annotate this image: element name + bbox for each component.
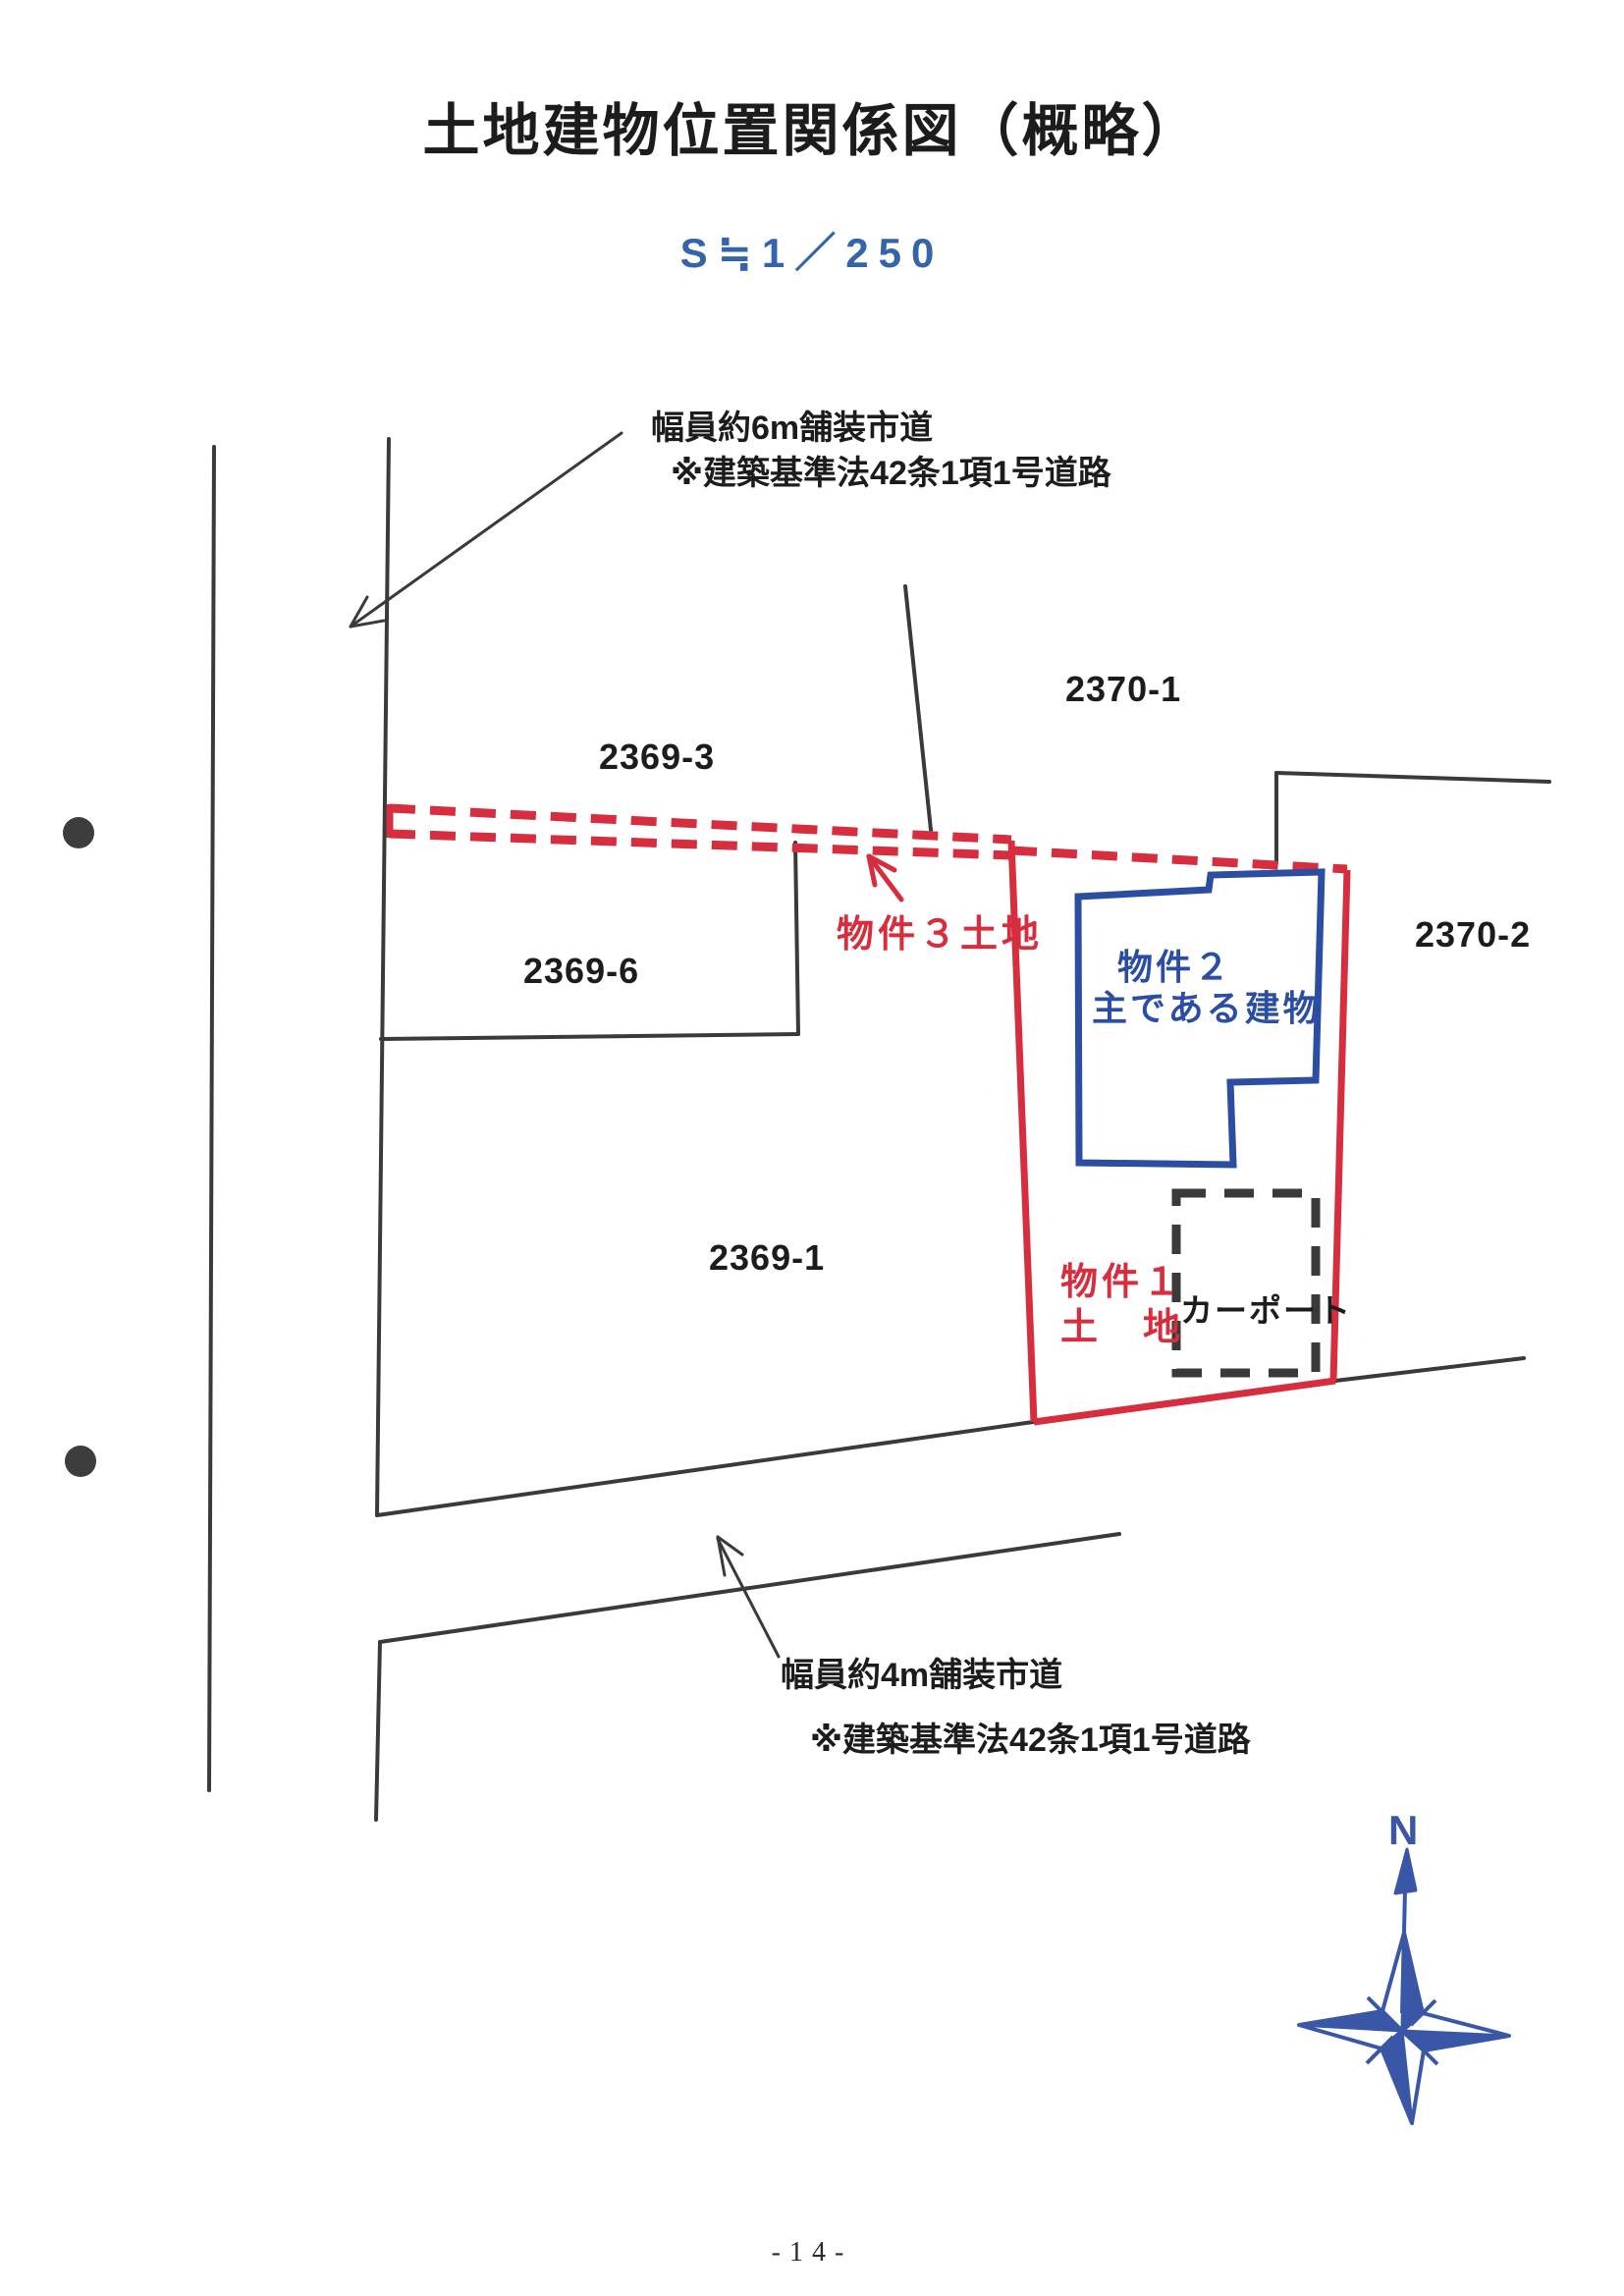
parcel-label-2369-6: 2369-6 [523,951,639,992]
page-title: 土地建物位置関係図（概略） [0,84,1624,167]
carport-label: カーポート [1180,1285,1352,1332]
boundary-lines [209,439,1549,1820]
top-road-annotation-line1: 幅員約6m舗装市道 [651,407,1111,450]
punch-hole-dots [63,817,96,1477]
scale-label: S≒1／250 [0,220,1624,280]
parcel-label-2369-3: 2369-3 [599,737,715,778]
carport-box [1176,1193,1316,1373]
page-number: -14- [0,2237,1624,2269]
property3-label: 物件３土地 [837,903,1043,957]
bottom-road-annotation: 幅員約4m舗装市道 ※建築基準法42条1項1号道路 [781,1654,1251,1762]
property3-strip [390,804,1011,855]
parcel-label-2369-1: 2369-1 [709,1237,825,1279]
bottom-road-annotation-line2: ※建築基準法42条1項1号道路 [810,1719,1251,1762]
punch-hole-dot [65,1446,96,1477]
bottom-road-arrow [718,1537,779,1657]
scanned-site-plan-page: { "page": { "title": "土地建物位置関係図（概略）", "s… [0,0,1624,2296]
compass-north-label: N [1388,1807,1418,1854]
parcel-label-2370-1: 2370-1 [1065,669,1181,710]
property3-arrow [869,856,901,900]
top-road-annotation: 幅員約6m舗装市道 ※建築基準法42条1項1号道路 [651,407,1111,495]
top-road-arrow [351,433,622,627]
parcel-label-2370-2: 2370-2 [1415,914,1531,956]
property2-label-line2: 主である建物 [1092,980,1322,1031]
top-road-annotation-line2: ※建築基準法42条1項1号道路 [671,452,1111,495]
property1-label-line2: 土 地 [1060,1296,1184,1350]
bottom-road-annotation-line1: 幅員約4m舗装市道 [781,1654,1251,1697]
compass-rose-icon [1299,1849,1509,2123]
punch-hole-dot [63,817,94,848]
site-plan-drawing [0,0,1624,2296]
